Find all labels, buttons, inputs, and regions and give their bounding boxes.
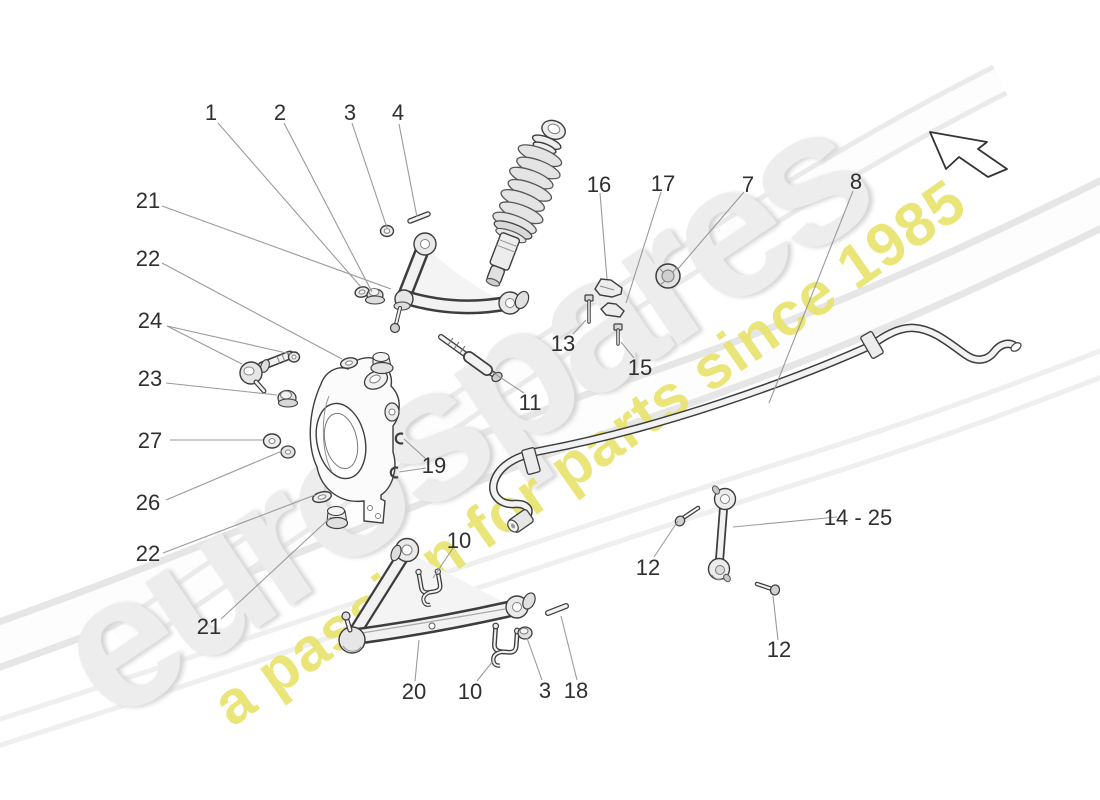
flanged-bushing-bottom [327,518,348,529]
callout-label-21b: 21 [197,614,221,639]
callout-label-17: 17 [651,171,675,196]
callout-label-10a: 10 [447,528,471,553]
callout-label-14-25: 14 - 25 [824,505,893,530]
callout-label-12a: 12 [636,555,660,580]
callout-label-2: 2 [274,100,286,125]
callout-label-3b: 3 [539,678,551,703]
callout-label-7: 7 [742,172,754,197]
callout-label-24: 24 [138,308,162,333]
callout-label-26: 26 [136,490,160,515]
callout-label-13: 13 [551,331,575,356]
callout-label-3: 3 [344,100,356,125]
callout-label-4: 4 [392,100,404,125]
callout-label-18: 18 [564,678,588,703]
callout-label-11: 11 [519,390,542,415]
callout-label-8: 8 [850,169,862,194]
parts-diagram-canvas: eurospares a passion for parts since 198… [0,0,1100,800]
callout-label-16: 16 [587,172,611,197]
bolt-12b [769,584,780,596]
callout-label-22b: 22 [136,541,160,566]
callout-label-27: 27 [138,428,162,453]
callout-label-19: 19 [422,453,446,478]
callout-label-20: 20 [402,679,426,704]
callout-label-10b: 10 [458,679,482,704]
tie-rod-end [240,352,300,407]
callout-label-12b: 12 [767,637,791,662]
fork-10b [490,623,520,667]
flanged-bushing-top [371,363,393,374]
callout-label-22a: 22 [136,246,160,271]
callout-label-21a: 21 [136,188,160,213]
callout-label-23: 23 [138,366,162,391]
callout-label-15: 15 [628,355,652,380]
callout-label-1: 1 [205,100,217,125]
